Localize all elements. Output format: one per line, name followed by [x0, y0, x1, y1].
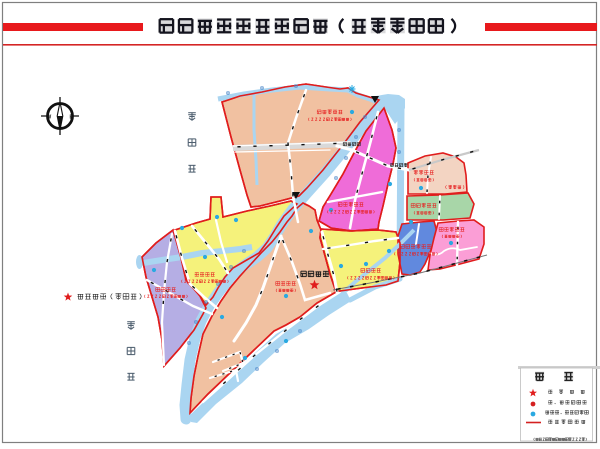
svg-text:W: W: [47, 115, 52, 121]
